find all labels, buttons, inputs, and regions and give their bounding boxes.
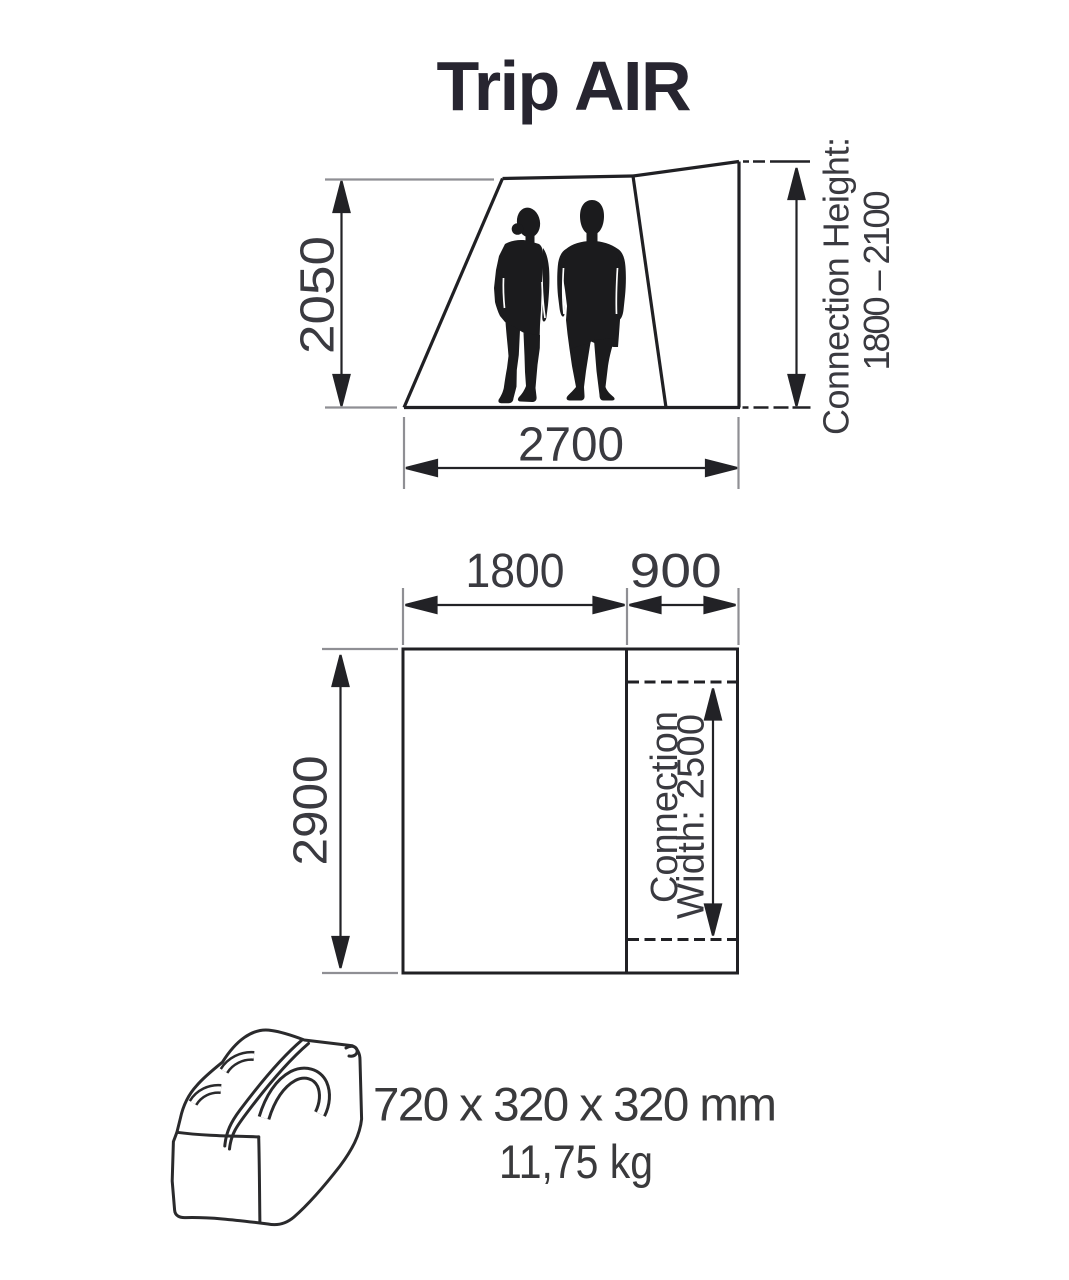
svg-text:1800 – 2100: 1800 – 2100 bbox=[856, 191, 897, 371]
svg-text:720 x 320 x 320 mm: 720 x 320 x 320 mm bbox=[373, 1079, 777, 1132]
svg-text:900: 900 bbox=[630, 544, 722, 598]
svg-text:11,75 kg: 11,75 kg bbox=[499, 1136, 653, 1189]
svg-text:Trip AIR: Trip AIR bbox=[437, 47, 692, 125]
svg-text:Width: 2500: Width: 2500 bbox=[671, 714, 713, 919]
svg-text:2900: 2900 bbox=[283, 756, 337, 866]
svg-text:Connection Height:: Connection Height: bbox=[816, 137, 857, 435]
svg-text:2700: 2700 bbox=[518, 418, 624, 472]
svg-text:1800: 1800 bbox=[466, 544, 565, 598]
svg-text:2050: 2050 bbox=[291, 236, 345, 354]
